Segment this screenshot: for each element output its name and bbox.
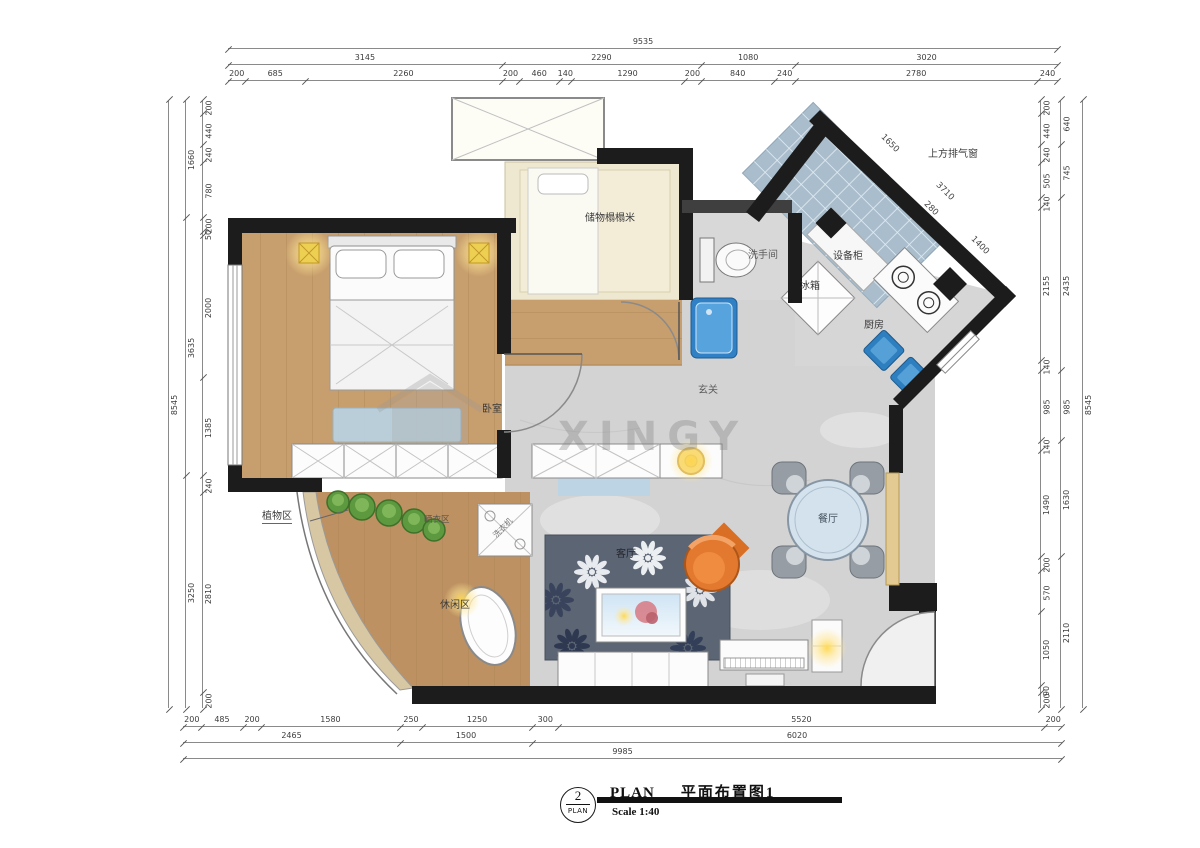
label-leisure-area: 休闲区 (440, 600, 470, 611)
tv-console (558, 652, 708, 688)
bedroom-window (228, 265, 242, 465)
dim-chain-right-groups: 640745243598516302110 (1060, 101, 1073, 708)
label-bedroom: 卧室 (482, 404, 502, 415)
title-block-scale: Scale 1:40 (612, 806, 659, 818)
dim-chain-bottom-detail: 200485200158025012503005520200 (183, 714, 1062, 727)
wardrobe (292, 444, 502, 478)
title-zh: 平面布置图1 (681, 785, 776, 801)
label-fridge: 冰箱 (800, 281, 820, 292)
dim-chain-left-groups: 166036353250 (185, 101, 198, 708)
coffee-table (596, 588, 686, 642)
label-dining: 餐厅 (818, 514, 838, 525)
dim-chain-left-overall: 8545 (168, 101, 181, 708)
label-bathroom: 洗手间 (748, 250, 778, 261)
label-living: 客厅 (616, 549, 636, 560)
label-equipment-cabinet: 设备柜 (833, 251, 863, 262)
floor-plan-page: XINGY 9535 3145229010803020 200685226020… (0, 0, 1200, 848)
label-kitchen: 厨房 (864, 320, 884, 331)
bathtub (691, 298, 737, 358)
floor-tatami-room (505, 162, 683, 300)
label-tatami-storage: 储物榻榻米 (585, 213, 635, 224)
dim-chain-top-overall: 9535 (228, 36, 1058, 49)
dim-chain-bottom-groups: 246515006020 (183, 730, 1062, 743)
drawing-number: 2 (566, 788, 590, 805)
label-exhaust-window: 上方排气窗 (928, 149, 978, 160)
dining-curtain-strip (886, 473, 899, 585)
label-plant-area: 植物区 (262, 511, 292, 524)
dim-chain-top-detail: 200685226020046014012902008402402780240 (228, 68, 1058, 81)
drawing-number-sub: PLAN (568, 807, 588, 815)
label-laundry-area: 晒衣区 (424, 516, 450, 525)
bed (328, 236, 456, 390)
title-block-circle: 2 PLAN (560, 787, 596, 823)
floor-hall-wood (505, 300, 683, 366)
dim-chain-right-detail: 2004402405051402155140985140149020057010… (1040, 101, 1053, 708)
label-entry: 玄关 (698, 385, 718, 396)
closet (452, 98, 604, 160)
dim-chain-top-groups: 3145229010803020 (228, 52, 1058, 65)
dim-chain-right-overall: 8545 (1082, 101, 1095, 708)
dim-chain-bottom-overall: 9985 (183, 746, 1062, 759)
title-block-title: PLAN平面布置图1 (610, 781, 775, 802)
dim-chain-left-detail: 20044024078020050200013852402810200 (202, 101, 215, 708)
title-en: PLAN (610, 785, 655, 801)
watermark-text: XINGY (558, 414, 748, 460)
